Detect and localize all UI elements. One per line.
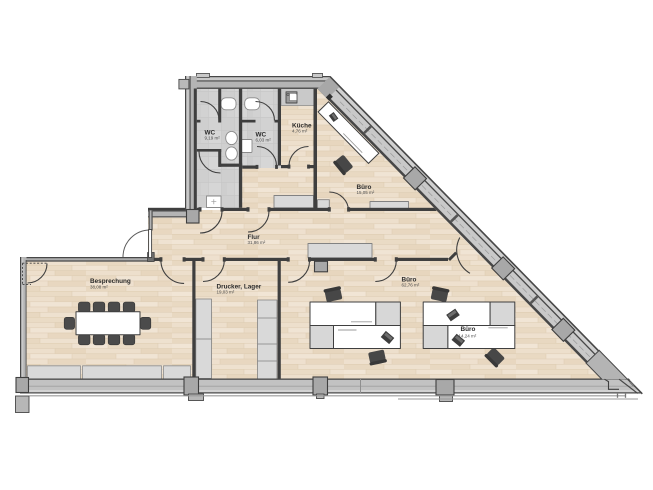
svg-text:Büro: Büro	[461, 326, 476, 333]
svg-text:6,03 m²: 6,03 m²	[256, 138, 272, 143]
svg-text:62,76 m²: 62,76 m²	[402, 283, 420, 288]
svg-text:15,05 m²: 15,05 m²	[357, 190, 375, 195]
svg-text:38,08 m²: 38,08 m²	[90, 284, 108, 289]
svg-text:14,24 m²: 14,24 m²	[459, 333, 477, 338]
svg-text:9,19 m²: 9,19 m²	[205, 136, 221, 141]
svg-text:4,76 m²: 4,76 m²	[292, 129, 308, 134]
svg-text:19,03 m²: 19,03 m²	[217, 290, 235, 295]
svg-text:31,86 m²: 31,86 m²	[248, 240, 266, 245]
